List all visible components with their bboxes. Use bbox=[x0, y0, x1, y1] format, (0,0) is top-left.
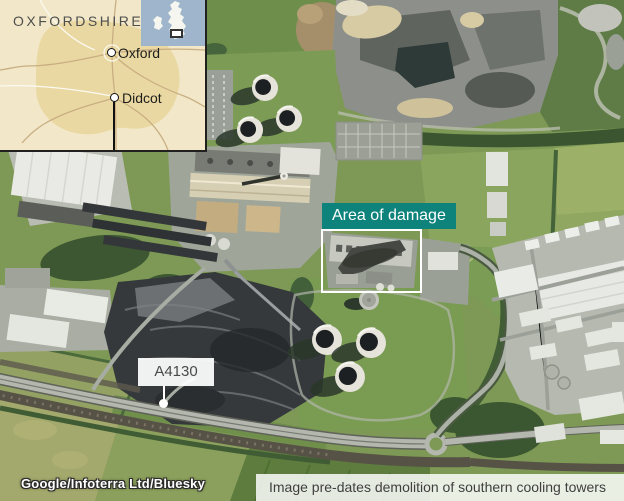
quarry bbox=[332, 0, 624, 132]
annotated-satellite-map: OXFORDSHIRE Oxford Didcot Area of damage… bbox=[0, 0, 624, 501]
didcot-label: Didcot bbox=[122, 90, 162, 106]
area-of-damage-rect bbox=[321, 229, 422, 293]
inset-map: OXFORDSHIRE Oxford Didcot bbox=[0, 0, 207, 152]
a4130-road-label: A4130 bbox=[138, 358, 214, 386]
region-label: OXFORDSHIRE bbox=[13, 13, 143, 29]
oxford-label: Oxford bbox=[118, 45, 160, 61]
didcot-marker bbox=[110, 93, 119, 102]
a4130-leader-dot bbox=[159, 399, 168, 408]
didcot-leader-line bbox=[113, 102, 115, 150]
area-of-damage-label: Area of damage bbox=[322, 203, 456, 229]
imagery-attribution: Google/Infoterra Ltd/Bluesky bbox=[21, 476, 205, 491]
minimap-area-marker bbox=[171, 30, 182, 37]
uk-locator-minimap bbox=[141, 0, 205, 46]
image-caption: Image pre-dates demolition of southern c… bbox=[256, 474, 624, 501]
oxford-marker bbox=[107, 48, 116, 57]
